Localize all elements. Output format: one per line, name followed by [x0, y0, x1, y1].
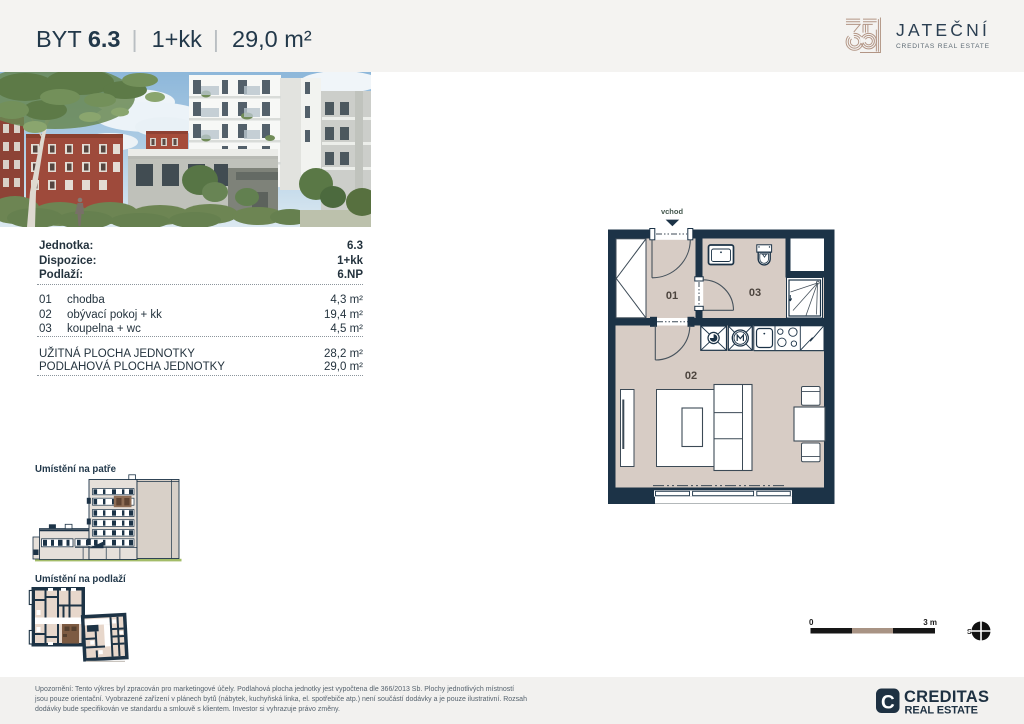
svg-text:C: C [881, 693, 895, 714]
svg-text:S: S [967, 629, 972, 636]
svg-text:0: 0 [809, 618, 814, 627]
svg-text:CREDITAS: CREDITAS [904, 688, 989, 706]
svg-text:vchod: vchod [661, 207, 684, 216]
svg-text:01: 01 [666, 290, 678, 302]
svg-text:02: 02 [685, 370, 697, 382]
svg-text:3 m: 3 m [923, 618, 937, 627]
svg-text:03: 03 [749, 287, 761, 299]
svg-text:REAL ESTATE: REAL ESTATE [905, 705, 979, 716]
